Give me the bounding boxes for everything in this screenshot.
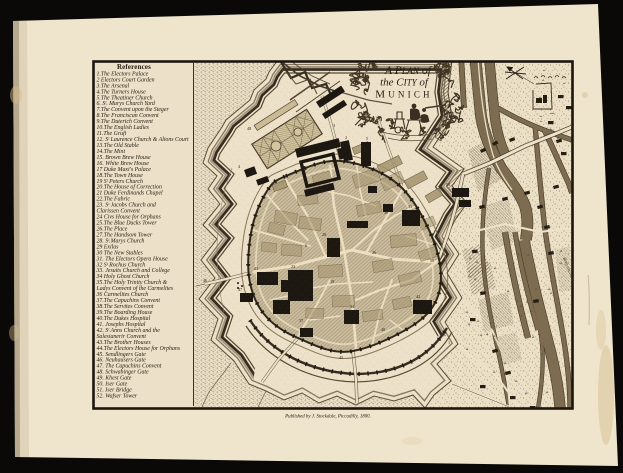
svg-text:20.The House of Correction: 20.The House of Correction	[97, 184, 162, 191]
svg-text:42. Sᵗ Anns Church and the: 42. Sᵗ Anns Church and the	[97, 327, 161, 334]
svg-text:MUNICH: MUNICH	[375, 89, 432, 101]
svg-text:References: References	[117, 64, 151, 71]
svg-text:49. Khest Gate: 49. Khest Gate	[97, 375, 132, 382]
svg-text:A PLAN of: A PLAN of	[384, 65, 433, 77]
svg-text:41. Josephs Hospital: 41. Josephs Hospital	[97, 321, 146, 328]
svg-text:34 Holy Ghost Church: 34 Holy Ghost Church	[96, 273, 150, 280]
svg-text:52. Wafser Tower: 52. Wafser Tower	[97, 393, 138, 400]
svg-text:48. Schwabinger Gate: 48. Schwabinger Gate	[97, 369, 150, 376]
svg-text:43.The Brother Houses: 43.The Brother Houses	[97, 339, 152, 346]
svg-text:the CITY of: the CITY of	[380, 77, 430, 89]
svg-text:46. Neuhausers Gate: 46. Neuhausers Gate	[97, 357, 147, 364]
svg-text:44.The Electors House for Orph: 44.The Electors House for Orphans	[97, 345, 181, 352]
svg-text:Published by J. Stockdale, Pic: Published by J. Stockdale, Piccadilly, 1…	[284, 415, 371, 420]
svg-text:4.The Turners House: 4.The Turners House	[97, 88, 147, 95]
svg-text:14.The Mint: 14.The Mint	[97, 148, 126, 155]
svg-text:Ladys Convent of the Carmelite: Ladys Convent of the Carmelites	[96, 285, 174, 292]
